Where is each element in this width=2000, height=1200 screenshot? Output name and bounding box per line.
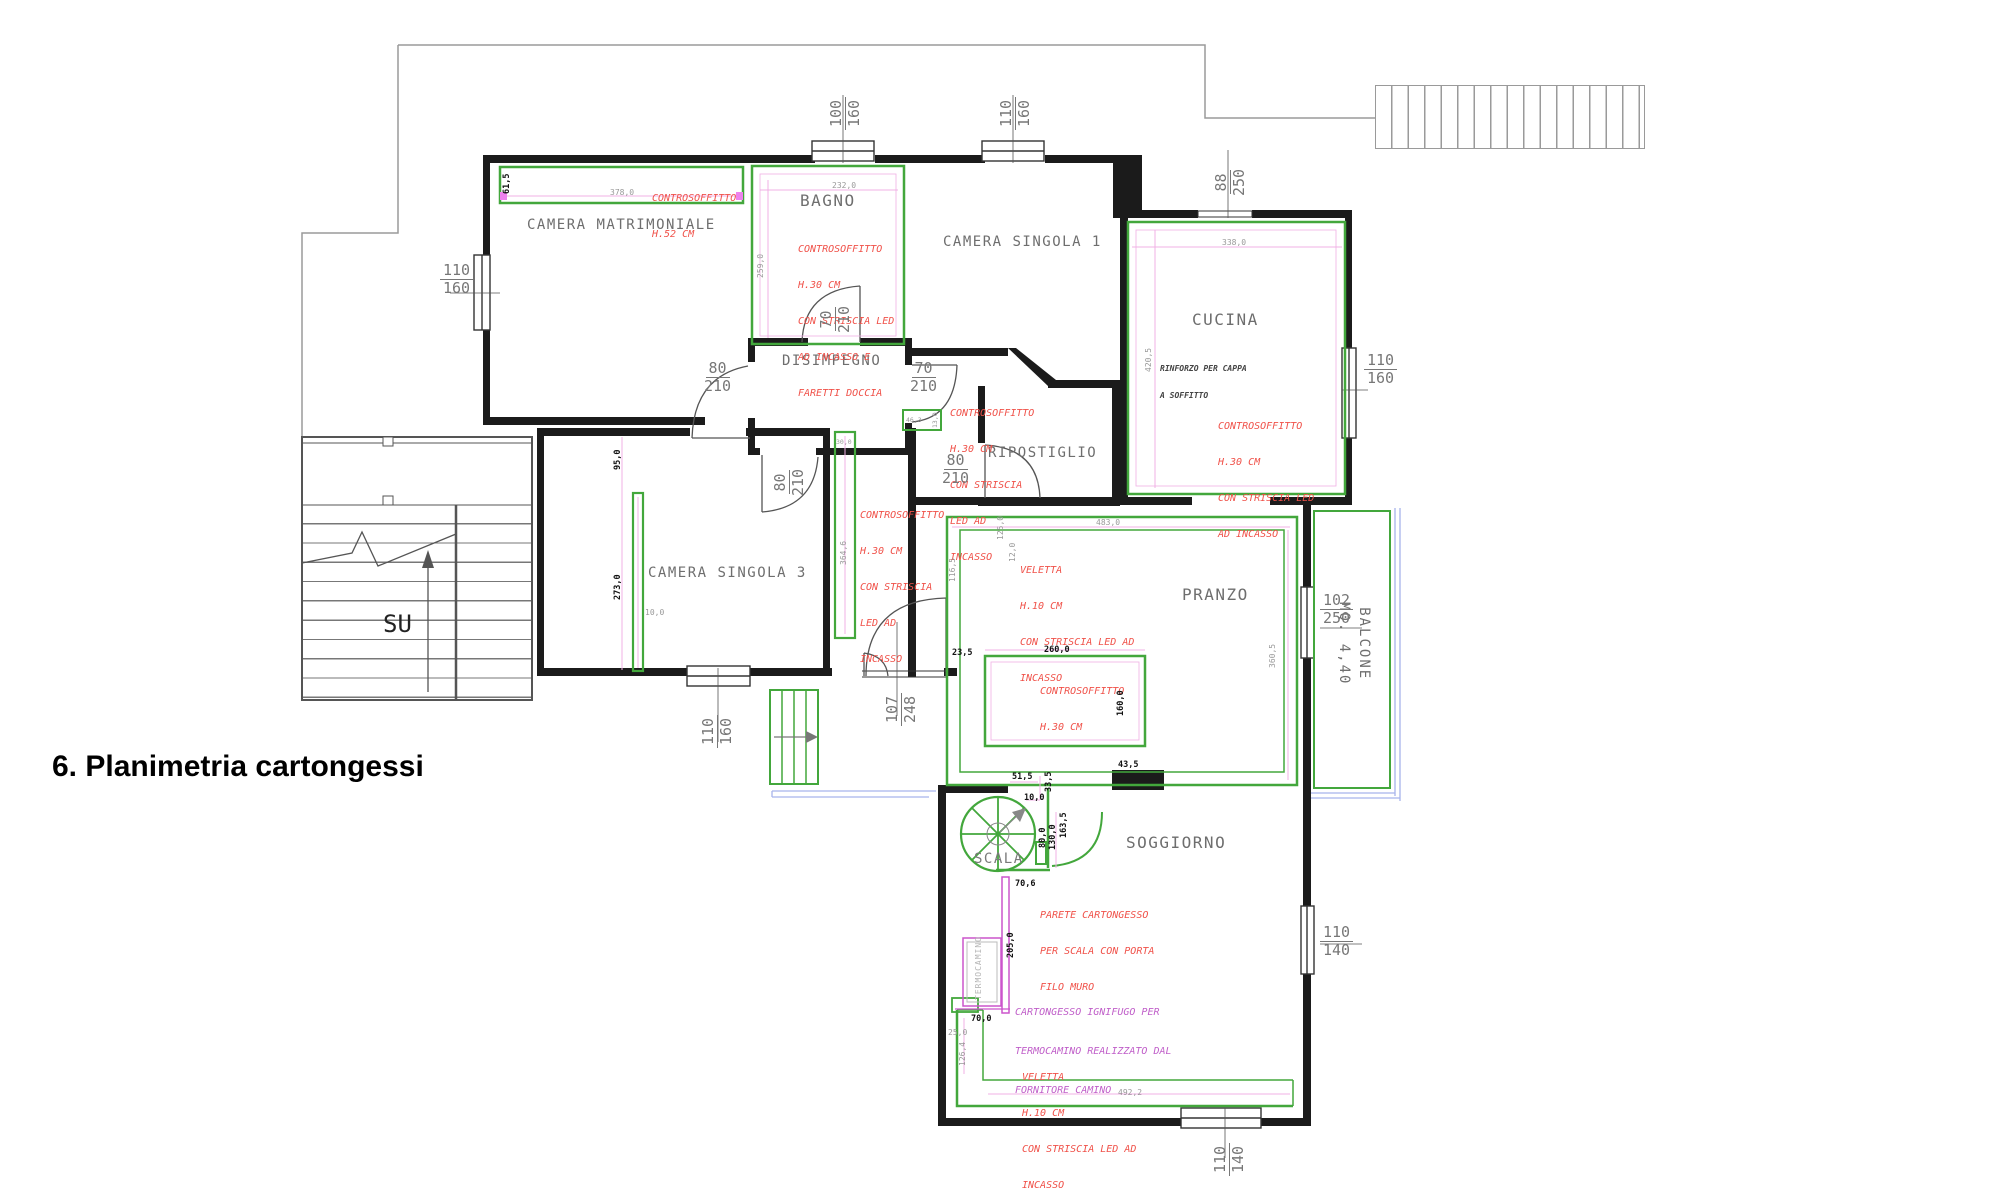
dim-top: 110 [1212, 1143, 1230, 1176]
annotation-veletta-soggiorno: VELETTA H.10 CM CON STRISCIA LED AD INCA… [1022, 1048, 1136, 1200]
dim-top: 80 [706, 360, 730, 378]
annotation-line: H.30 CM [798, 280, 894, 292]
dim-pranzo-c: 116,5 [948, 558, 957, 582]
room-label-camera-singola-3: CAMERA SINGOLA 3 [648, 565, 807, 581]
dim-top: 110 [700, 715, 718, 748]
room-label-scala: SCALA [974, 851, 1024, 867]
spiral-stair-arrow [1012, 808, 1026, 822]
dim-bottom: 210 [910, 378, 937, 395]
dim-bottom: 160 [718, 718, 735, 745]
annotation-line: PER SCALA CON PORTA [1040, 946, 1154, 958]
dim-top: 70 [912, 360, 936, 378]
window-label-cs1: 110160 [998, 97, 1033, 130]
annotation-line: H.30 CM [860, 546, 944, 558]
floorplan-drawing [0, 0, 2000, 1200]
dim-inner-width: 260,0 [1044, 645, 1070, 655]
window-label-cs3: 110160 [700, 715, 735, 748]
dim-top: 80 [772, 470, 790, 494]
annotation-controsoffitto-pranzo: CONTROSOFFITTO H.30 CM [1040, 662, 1124, 758]
stairwell [302, 437, 532, 700]
annotation-line: CARTONGESSO IGNIFUGO PER [1015, 1006, 1172, 1019]
dim-sogg-c: 126,4 [958, 1042, 967, 1066]
dim-corridor-width: 30,0 [836, 438, 852, 446]
floorplan-page: CAMERA MATRIMONIALE BAGNO CAMERA SINGOLA… [0, 0, 2000, 1200]
dim-scala-b: 33,5 [1044, 772, 1054, 792]
dim-scala-g: 70,6 [1015, 879, 1035, 889]
door-label-balcone: 102250 [1320, 592, 1353, 627]
annotation-line: CONTROSOFFITTO [860, 510, 944, 522]
dim-corridor-length: 364,6 [839, 541, 848, 565]
annotation-line: VELETTA [1022, 1072, 1136, 1084]
dim-bottom: 210 [836, 306, 853, 333]
annotation-line: CONTROSOFFITTO [652, 193, 736, 205]
annotation-line: H.10 CM [1020, 601, 1134, 613]
dim-bottom: 160 [1367, 370, 1394, 387]
annotation-line: INCASSO [1022, 1180, 1136, 1192]
window-label-cm: 110160 [440, 262, 473, 297]
annotation-line: LED AD [860, 618, 944, 630]
annotation-line: LED AD [950, 516, 1034, 528]
door-label-disimpegno-right: 70210 [910, 360, 937, 395]
dim-top: 100 [828, 97, 846, 130]
dim-top: 110 [1320, 924, 1353, 942]
page-title: 6. Planimetria cartongessi [52, 750, 424, 784]
stair-up-arrow [422, 550, 434, 568]
dim-bottom: 140 [1323, 942, 1350, 959]
dim-top: 70 [818, 307, 836, 331]
door-label-disimpegno-bottom: 80210 [772, 469, 807, 496]
annotation-line: CON STRISCIA [860, 582, 944, 594]
door-label-ripostiglio: 80210 [942, 452, 969, 487]
dim-scala-a: 51,5 [1012, 772, 1032, 782]
room-label-soggiorno: SOGGIORNO [1126, 833, 1226, 852]
dim-vestibolo-a: 46,3 [906, 416, 922, 424]
dim-sogg-b: 25,0 [948, 1028, 967, 1037]
dim-bottom: 248 [902, 696, 919, 723]
dim-top: 80 [944, 452, 968, 470]
dim-bottom: 140 [1230, 1146, 1247, 1173]
annotation-line: CONTROSOFFITTO [798, 244, 894, 256]
annotation-line: AD INCASSO E [798, 352, 894, 364]
dim-scala-e: 130,0 [1048, 824, 1058, 850]
annotation-line: PARETE CARTONGESSO [1040, 910, 1154, 922]
room-label-bagno: BAGNO [800, 191, 856, 210]
dim-bagno-width: 232,0 [832, 181, 856, 190]
dim-scala-d: 80,0 [1038, 828, 1048, 848]
annotation-line: CONTROSOFFITTO [950, 408, 1034, 420]
dim-scala-c: 10,0 [1024, 793, 1044, 803]
annotation-line: CON STRISCIA LED AD [1020, 637, 1134, 649]
door-label-entrance: 107248 [884, 693, 919, 726]
door-label-bagno: 70210 [818, 306, 853, 333]
annotation-line: VELETTA [1020, 565, 1134, 577]
annotation-line: CON STRISCIA LED AD [1022, 1144, 1136, 1156]
dim-cs3-a: 95,0 [613, 450, 623, 470]
window-label-soggiorno-bottom: 110140 [1212, 1143, 1247, 1176]
dim-cucina-width: 338,0 [1222, 238, 1246, 247]
dim-top: 110 [998, 97, 1016, 130]
annotation-controsoffitto-corridoio: CONTROSOFFITTO H.30 CM CON STRISCIA LED … [860, 486, 944, 690]
dim-cm-height: 61,5 [502, 174, 512, 194]
annotation-line: H.30 CM [1218, 457, 1314, 469]
balcone-line1: BALCONE [1354, 602, 1374, 685]
dim-top: 88 [1213, 170, 1231, 194]
annotation-line: RINFORZO PER CAPPA [1160, 364, 1247, 373]
dim-vestibolo-b: 13,0 [931, 412, 939, 428]
dim-pranzo-a: 125,0 [996, 516, 1005, 540]
dim-bottom: 250 [1231, 169, 1248, 196]
dim-inner-height: 160,0 [1116, 690, 1126, 716]
annotation-line: CONTROSOFFITTO [1218, 421, 1314, 433]
dim-pranzo-d: 360,5 [1268, 644, 1277, 668]
dim-cs3-t: 10,0 [645, 608, 664, 617]
annotation-line: H.10 CM [1022, 1108, 1136, 1120]
dim-top: 107 [884, 693, 902, 726]
door-label-cucina: 88250 [1213, 169, 1248, 196]
dim-scala-f: 163,5 [1059, 812, 1069, 838]
window-label-bagno: 100160 [828, 97, 863, 130]
dim-cucina-height: 420,5 [1144, 348, 1153, 372]
dim-inner-b: 43,5 [1118, 760, 1138, 770]
dim-bottom: 210 [704, 378, 731, 395]
dim-bottom: 160 [846, 100, 863, 127]
dim-bottom: 160 [443, 280, 470, 297]
termocamino-label: TERMOCAMINO [974, 936, 983, 1000]
room-label-camera-singola-1: CAMERA SINGOLA 1 [943, 234, 1102, 250]
annotation-line: A SOFFITTO [1160, 391, 1247, 400]
annotation-controsoffitto-cucina: CONTROSOFFITTO H.30 CM CON STRISCIA LED … [1218, 397, 1314, 565]
room-label-cucina: CUCINA [1192, 310, 1259, 329]
dim-cm-width: 378,0 [610, 188, 634, 197]
dim-sogg-a: 70,0 [971, 1014, 991, 1024]
dim-pranzo-b: 12,0 [1008, 543, 1017, 562]
entrance-arrow [774, 731, 818, 743]
dim-bottom: 210 [790, 469, 807, 496]
dim-bottom: 210 [942, 470, 969, 487]
annotation-rinforzo-cappa: RINFORZO PER CAPPA A SOFFITTO [1160, 346, 1247, 418]
dim-top: 110 [1364, 352, 1397, 370]
annotation-line: H.52 CM [652, 229, 736, 241]
dim-bagno-height: 259,0 [756, 254, 765, 278]
room-label-pranzo: PRANZO [1182, 585, 1249, 604]
annotation-line: CONTROSOFFITTO [1040, 686, 1124, 698]
annotation-line: FARETTI DOCCIA [798, 388, 894, 400]
annotation-controsoffitto-cm: CONTROSOFFITTO H.52 CM [652, 169, 736, 265]
dim-sogg-d: 492,2 [1118, 1088, 1142, 1097]
window-label-cucina: 110160 [1364, 352, 1397, 387]
annotation-line: H.30 CM [1040, 722, 1124, 734]
dim-bottom: 160 [1016, 100, 1033, 127]
annotation-line: INCASSO [860, 654, 944, 666]
dim-top: 102 [1320, 592, 1353, 610]
dim-top: 110 [440, 262, 473, 280]
stair-su-label: SU [383, 610, 412, 638]
dim-pranzo-width: 483,0 [1096, 518, 1120, 527]
door-label-disimpegno-left: 80210 [704, 360, 731, 395]
dim-cs3-b: 273,0 [613, 574, 623, 600]
dim-scala-h: 205,0 [1006, 932, 1016, 958]
dim-inner-a: 23,5 [952, 648, 972, 658]
annotation-line: CON STRISCIA LED [1218, 493, 1314, 505]
dim-bottom: 250 [1323, 610, 1350, 627]
window-label-soggiorno-right: 110140 [1320, 924, 1353, 959]
annotation-line: AD INCASSO [1218, 529, 1314, 541]
